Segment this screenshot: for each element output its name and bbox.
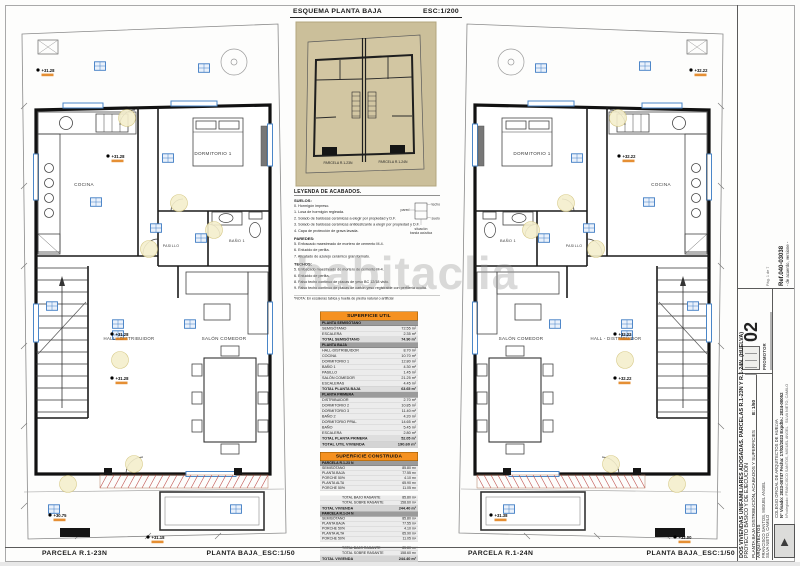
siteplan-parcel-label: PARCELA R.1-24N bbox=[379, 160, 409, 164]
legend-item: 9. Falso techo continuo de placas de car… bbox=[294, 285, 440, 291]
titleblock-border bbox=[737, 5, 738, 561]
row-label: TOTAL VIVIENDA bbox=[322, 506, 353, 511]
row-value: 158.60 m² bbox=[400, 551, 416, 556]
row-value: 2.70 m² bbox=[403, 398, 416, 403]
footer-divider bbox=[5, 547, 737, 548]
reference-note: - de acuerdo, versione - bbox=[786, 186, 791, 286]
level-marker: +32.00 bbox=[679, 535, 693, 540]
row-value: 8.70 m² bbox=[403, 348, 416, 353]
row-value: 77.55 m² bbox=[402, 471, 416, 476]
row-label: PORCHE 50% bbox=[322, 526, 345, 531]
row-label: TOTAL BAJO RASANTE bbox=[342, 495, 380, 500]
row-value: 4.45 m² bbox=[403, 381, 416, 386]
row-label: DORMITORIO PPAL. bbox=[322, 420, 357, 425]
esquema-title: ESQUEMA PLANTA BAJA bbox=[293, 8, 382, 15]
row-value: 77.55 m² bbox=[402, 521, 416, 526]
site-plan: PARCELA R.1-23NPARCELA R.1-24N bbox=[296, 22, 436, 186]
level-marker: +31.28 bbox=[112, 154, 126, 159]
room-label: BAÑO 1 bbox=[229, 238, 245, 243]
legend-title: LEYENDA DE ACABADOS. bbox=[294, 189, 440, 196]
superficie-construida-table: SUPERFICIE CONSTRUIDAPARCELA R.1-23 NSEM… bbox=[320, 452, 418, 562]
drawing-sheet: DORMITORIO 1COCINABAÑO 1PASILLOHALL - DI… bbox=[0, 0, 800, 566]
footer-parcel-left: PARCELA R.1-23N bbox=[42, 550, 107, 557]
promotor-name-line bbox=[770, 312, 772, 370]
row-label: SALÓN COMEDOR bbox=[322, 376, 355, 381]
room-label: SALÓN COMEDOR bbox=[499, 335, 544, 341]
level-marker: +31.28 bbox=[116, 376, 130, 381]
row-value: 2.80 m² bbox=[403, 431, 416, 436]
row-label: COCINA bbox=[322, 354, 336, 359]
project-title-block: DOS VIVIENDAS UNIFAMILIARES ADOSADAS. PA… bbox=[739, 374, 757, 558]
row-label: SEMISÓTANO bbox=[322, 466, 345, 471]
row-value: 12.80 m² bbox=[401, 359, 416, 364]
triangle-icon: ▲ bbox=[778, 534, 791, 549]
row-label: PORCHE 50% bbox=[322, 476, 345, 481]
row-value: 63.65 m² bbox=[401, 387, 416, 392]
row-label: PLANTA ALTA bbox=[322, 531, 344, 536]
reference-block: Ref.040-03038 - de acuerdo, versione - bbox=[779, 186, 793, 286]
esquema-scale: ESC:1/200 bbox=[423, 8, 459, 15]
row-value: 14.65 m² bbox=[401, 420, 416, 425]
floor-plan-left: DORMITORIO 1COCINABAÑO 1PASILLOHALL - DI… bbox=[8, 6, 298, 546]
row-label: PASILLO bbox=[322, 370, 337, 375]
page-edge bbox=[0, 562, 800, 566]
legend-item: 7. Alicatado de azulejo cerámico gran fo… bbox=[294, 253, 440, 259]
row-value: 5.45 m² bbox=[403, 425, 416, 430]
table-title: SUPERFICIE UTIL bbox=[320, 311, 418, 320]
table-title: SUPERFICIE CONSTRUIDA bbox=[320, 452, 418, 461]
center-panel: LEYENDA DE ACABADOS.SUELOS:0. Hormigón i… bbox=[294, 189, 440, 551]
row-value: 85.80 m² bbox=[402, 495, 416, 500]
row-value: 2.35 m² bbox=[403, 332, 416, 337]
row-label: BAÑO 2 bbox=[322, 414, 336, 419]
row-value: 190.60 m² bbox=[398, 442, 416, 447]
row-value: 10.70 m² bbox=[401, 354, 416, 359]
row-label: PLANTA BAJA bbox=[322, 521, 345, 526]
row-label: TOTAL UTIL VIVIENDA bbox=[322, 442, 365, 447]
level-marker: +30.75 bbox=[54, 513, 68, 518]
room-label: PASILLO bbox=[163, 244, 179, 248]
row-value: 4.10 m² bbox=[404, 476, 416, 481]
colegio-logo: ▲ bbox=[774, 524, 795, 558]
room-label: BAÑO 1 bbox=[500, 238, 516, 243]
diagram-label: suelo bbox=[432, 217, 440, 221]
row-value: 244.40 m² bbox=[399, 506, 416, 511]
row-label: SEMISÓTANO bbox=[322, 516, 345, 521]
room-label: HALL - DISTRIBUIDOR bbox=[104, 336, 155, 341]
table-row: TOTAL UTIL VIVIENDA190.60 m² bbox=[320, 441, 418, 448]
architects-block: ARQUITECTOS FRANCISCO SANTOS, MIGUEL ANG… bbox=[757, 378, 770, 558]
row-value: 21.25 m² bbox=[401, 376, 416, 381]
room-label: COCINA bbox=[74, 182, 94, 187]
floor-plan-right: DORMITORIO 1COCINABAÑO 1PASILLOHALL - DI… bbox=[447, 6, 737, 546]
legend-note: *NOTA: En escaleras tabica y huella de p… bbox=[294, 295, 440, 301]
row-label: BAÑO bbox=[322, 425, 332, 430]
room-label: HALL - DISTRIBUIDOR bbox=[591, 336, 642, 341]
siteplan-parcel-label: PARCELA R.1-23N bbox=[324, 161, 354, 165]
diagram-label: techo bbox=[432, 203, 441, 207]
footer-scale-left: PLANTA BAJA_ESC:1/50 bbox=[185, 550, 295, 557]
row-label: HALL-DISTRIBUIDOR bbox=[322, 348, 359, 353]
colegiados-line: Nºcolegiado: FRANCISCO SANTOS, MIGUEL AN… bbox=[785, 288, 789, 518]
row-value: 4.20 m² bbox=[403, 414, 416, 419]
row-value: 85.80 m² bbox=[402, 516, 416, 521]
row-value: 10.85 m² bbox=[401, 403, 416, 408]
room-label: COCINA bbox=[651, 182, 671, 187]
row-value: 65.90 m² bbox=[402, 531, 416, 536]
row-label: PLANTA BAJA bbox=[322, 471, 345, 476]
row-label: TOTAL SOBRE RASANTE bbox=[342, 551, 384, 556]
row-label: ESCALERAS bbox=[322, 381, 344, 386]
room-label: DORMITORIO 1 bbox=[194, 151, 231, 156]
row-label: TOTAL PLANTA PRIMERA bbox=[322, 436, 368, 441]
footer-scale-right: PLANTA BAJA_ESC:1/50 bbox=[628, 550, 735, 557]
row-label: ESCALERA bbox=[322, 332, 342, 337]
room-label: SALÓN COMEDOR bbox=[202, 335, 247, 341]
row-value: 11.40 m² bbox=[402, 409, 416, 414]
row-label: DORMITORIO 2 bbox=[322, 403, 349, 408]
diagram-caption: situaciónbanda acústica bbox=[410, 227, 432, 235]
level-marker: +31.28 bbox=[42, 68, 56, 73]
row-label: DISTRIBUIDOR bbox=[322, 398, 348, 403]
row-value: 1.45 m² bbox=[403, 370, 416, 375]
level-marker: +32.22 bbox=[619, 376, 633, 381]
row-label: DORMITORIO 1 bbox=[322, 359, 349, 364]
level-marker: +31.18 bbox=[152, 535, 166, 540]
table-row: TOTAL VIVIENDA244.40 m² bbox=[320, 556, 418, 562]
promotor-block: PROMOTOR bbox=[763, 298, 775, 370]
diagram-label: pared bbox=[401, 208, 410, 212]
level-marker: +32.22 bbox=[623, 154, 637, 159]
row-value: 65.90 m² bbox=[402, 481, 416, 486]
acoustic-band-diagram: techosueloparedsituaciónbanda acústica bbox=[400, 197, 440, 241]
row-label: PORCHE 50% bbox=[322, 486, 345, 491]
row-value: 52.05 m² bbox=[401, 436, 416, 441]
row-label: SEMISÓTANO bbox=[322, 326, 346, 331]
row-value: 158.60 m² bbox=[400, 500, 416, 505]
room-label: PASILLO bbox=[566, 244, 582, 248]
row-label: TOTAL VIVIENDA bbox=[322, 556, 353, 561]
row-value: 11.05 m² bbox=[402, 486, 416, 491]
row-value: 72.55 m² bbox=[401, 326, 416, 331]
row-value: 85.80 m² bbox=[402, 466, 416, 471]
row-label: ESCALERA bbox=[322, 431, 342, 436]
row-label: TOTAL SEMISÓTANO bbox=[322, 337, 360, 342]
row-label: TOTAL PLANTA BAJA bbox=[322, 387, 361, 392]
superficie-util-table: SUPERFICIE UTILPLANTA SEMISÓTANOSEMISÓTA… bbox=[320, 311, 418, 448]
row-label: DORMITORIO 3 bbox=[322, 409, 349, 414]
row-value: 11.05 m² bbox=[402, 536, 416, 541]
room-label: DORMITORIO 1 bbox=[513, 151, 550, 156]
row-label: TOTAL SOBRE RASANTE bbox=[342, 500, 384, 505]
sheet-scale: E: 1/50 bbox=[751, 400, 756, 415]
page-number: Pág. 1 de 7 bbox=[766, 226, 774, 286]
row-label: PORCHE 50% bbox=[322, 536, 345, 541]
level-marker: +31.28 bbox=[116, 332, 130, 337]
level-marker: +32.22 bbox=[619, 332, 633, 337]
level-marker: +32.22 bbox=[695, 68, 709, 73]
level-marker: +31.38 bbox=[495, 513, 509, 518]
row-label: PLANTA ALTA bbox=[322, 481, 344, 486]
footer-parcel-right: PARCELA R.1-24N bbox=[468, 550, 533, 557]
colegio-stamp: COLEGIO OFICIAL DE ARQUITECTOS DE HUELVA… bbox=[775, 288, 791, 518]
esquema-header: ESQUEMA PLANTA BAJA ESC:1/200 bbox=[290, 7, 462, 18]
row-label: BAÑO 1 bbox=[322, 365, 336, 370]
architect-2: SILVA NIETO, CAMILO bbox=[766, 378, 771, 558]
row-value: 244.40 m² bbox=[399, 556, 416, 561]
row-value: 4.10 m² bbox=[404, 526, 416, 531]
row-value: 4.30 m² bbox=[403, 365, 416, 370]
row-value: 74.90 m² bbox=[401, 337, 416, 342]
promotor-label: PROMOTOR bbox=[763, 298, 768, 370]
